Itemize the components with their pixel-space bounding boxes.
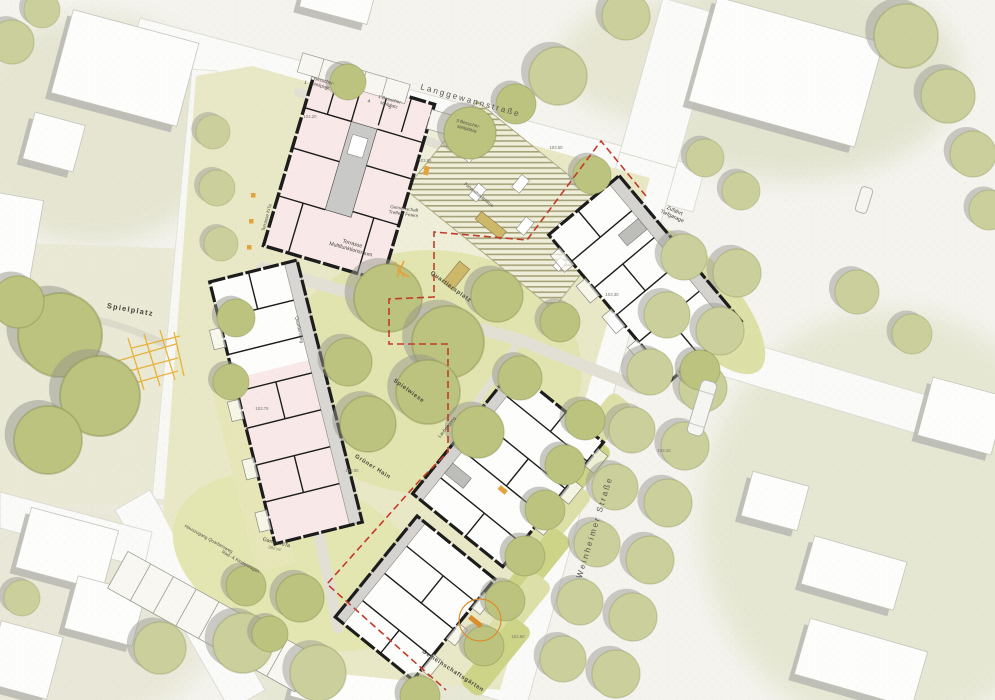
spot-elevation: 102.60 — [511, 634, 525, 639]
site-plan-page: 1 2 3 4 5 — [0, 0, 995, 700]
spot-elevation: 104.20 — [303, 114, 317, 119]
spot-elevation: 103.85 — [418, 158, 432, 163]
spot-elevation: 102.75 — [255, 406, 269, 411]
spot-elevation: 103.30 — [605, 292, 619, 297]
spot-elevation: 103.10 — [657, 448, 671, 453]
spot-elevation: 102.90 — [345, 468, 359, 473]
spot-elevation: 103.50 — [549, 145, 563, 150]
site-plan-canvas: 1 2 3 4 5 — [0, 0, 995, 700]
